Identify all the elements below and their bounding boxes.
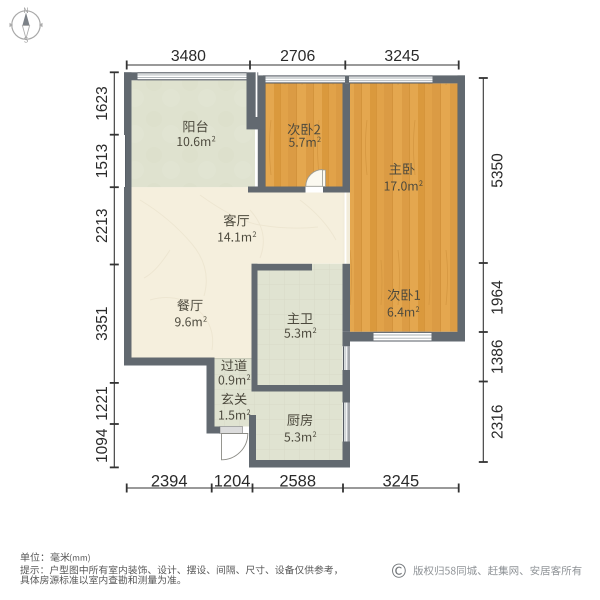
svg-text:2213: 2213 — [94, 209, 111, 243]
svg-text:1386: 1386 — [490, 340, 507, 374]
svg-text:1964: 1964 — [490, 280, 507, 315]
svg-text:1204: 1204 — [214, 473, 251, 491]
svg-text:1221: 1221 — [94, 386, 111, 420]
svg-text:3351: 3351 — [94, 306, 111, 340]
svg-text:3480: 3480 — [171, 48, 206, 65]
svg-text:2316: 2316 — [490, 405, 507, 439]
svg-text:3245: 3245 — [382, 473, 419, 491]
svg-text:1623: 1623 — [94, 86, 111, 120]
svg-text:5350: 5350 — [490, 153, 507, 188]
svg-text:1094: 1094 — [94, 428, 111, 463]
svg-text:2706: 2706 — [280, 48, 315, 65]
svg-text:2394: 2394 — [151, 473, 188, 491]
svg-text:2588: 2588 — [279, 473, 316, 491]
svg-text:3245: 3245 — [384, 48, 419, 65]
svg-text:1513: 1513 — [94, 144, 111, 178]
